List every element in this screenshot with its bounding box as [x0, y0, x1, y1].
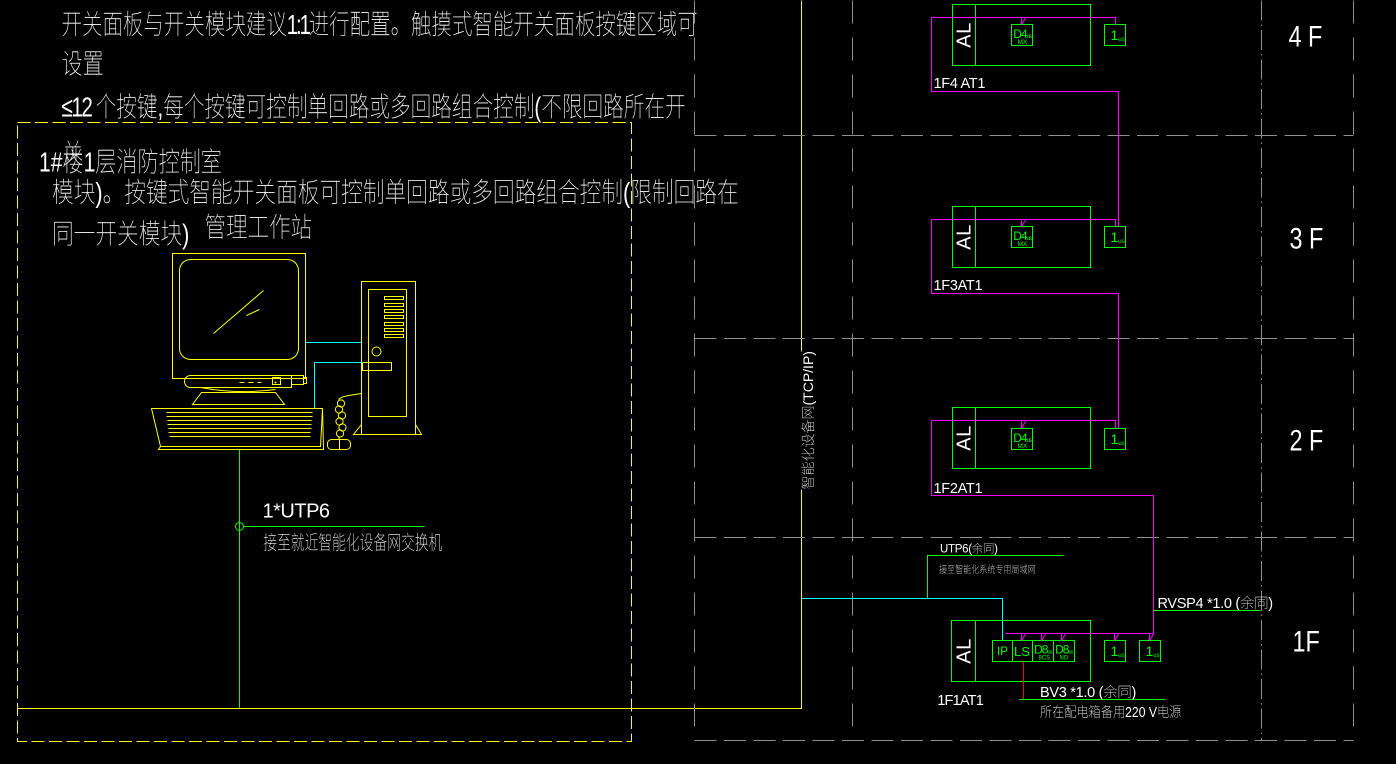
svg-text:智能化设备网(TCP/IP): 智能化设备网(TCP/IP) [798, 351, 818, 489]
svg-text:1F: 1F [1293, 625, 1320, 658]
svg-text:UTP6(余同): UTP6(余同) [940, 541, 998, 557]
svg-text:所在配电箱备用220 V电源: 所在配电箱备用220 V电源 [1040, 700, 1181, 722]
svg-text:AL: AL [954, 224, 976, 249]
svg-text:开关面板与开关模块建议1:1进行配置。触摸式智能开关面板按键: 开关面板与开关模块建议1:1进行配置。触摸式智能开关面板按键区域可 [62, 3, 698, 43]
svg-text:AL: AL [954, 22, 976, 47]
svg-text:AL: AL [954, 638, 976, 663]
svg-text:3 F: 3 F [1290, 222, 1324, 255]
svg-text:设置: 设置 [62, 42, 104, 83]
svg-text:MX: MX [1018, 39, 1028, 46]
svg-text:RVSP4 *1.0 (余同): RVSP4 *1.0 (余同) [1158, 592, 1273, 613]
svg-text:2 F: 2 F [1290, 424, 1324, 457]
svg-text:MX: MX [1018, 241, 1028, 248]
svg-text:MX: MX [1018, 443, 1028, 450]
svg-text:AL: AL [954, 425, 976, 450]
svg-text:IP: IP [997, 646, 1008, 658]
svg-text:4 F: 4 F [1289, 20, 1323, 53]
svg-text:ND: ND [1060, 656, 1069, 662]
svg-text:接至就近智能化设备网交换机: 接至就近智能化设备网交换机 [263, 526, 442, 555]
svg-text:同一开关模块): 同一开关模块) [52, 212, 189, 252]
svg-text:8CS: 8CS [1039, 656, 1051, 662]
svg-text:接至智能化系统专用局域网: 接至智能化系统专用局域网 [939, 561, 1036, 577]
svg-text:1*UTP6: 1*UTP6 [263, 501, 330, 523]
svg-text:模块)。按键式智能开关面板可控制单回路或多回路组合控制(限制: 模块)。按键式智能开关面板可控制单回路或多回路组合控制(限制回路在 [52, 171, 739, 211]
svg-text:管理工作站: 管理工作站 [205, 206, 313, 246]
svg-text:1F4 AT1: 1F4 AT1 [934, 76, 986, 92]
svg-text:1F1AT1: 1F1AT1 [937, 693, 983, 709]
svg-text:LS: LS [1014, 644, 1030, 659]
svg-text:1F2AT1: 1F2AT1 [934, 481, 983, 497]
svg-text:≤12 个按键,每个按键可控制单回路或多回路组合控制(不限回: ≤12 个按键,每个按键可控制单回路或多回路组合控制(不限回路所在开 [62, 85, 686, 126]
svg-text:1F3AT1: 1F3AT1 [934, 278, 983, 294]
